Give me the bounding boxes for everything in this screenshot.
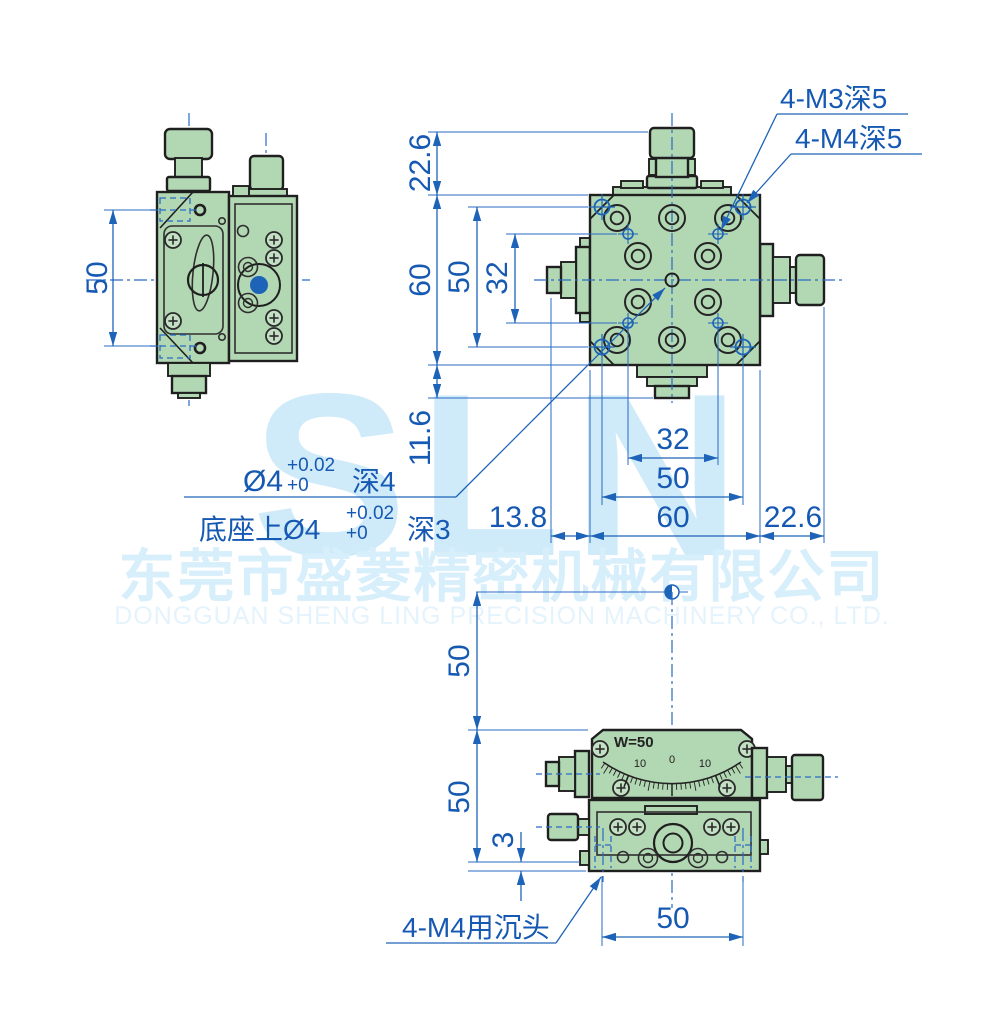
dim-50-left: 50 bbox=[443, 260, 476, 293]
note-l1-tol-up: +0.02 bbox=[287, 455, 335, 476]
dim-50-front-bottom: 50 bbox=[656, 902, 689, 935]
watermark-company-en: DONGGUAN SHENG LING PRECISION MACHINERY … bbox=[114, 602, 890, 630]
note-l1-tol-dn: +0 bbox=[287, 475, 309, 496]
callout-counterbore-label: 4-M4用沉头 bbox=[402, 912, 550, 943]
dim-11-6-left: 11.6 bbox=[404, 410, 437, 466]
side-body-tab bbox=[233, 186, 249, 196]
dim-22-6-bottom: 22.6 bbox=[764, 501, 822, 534]
dim-60-bottom: 60 bbox=[656, 501, 689, 534]
dim-50-bottom: 50 bbox=[656, 462, 689, 495]
scale-label-center: 0 bbox=[669, 754, 675, 766]
front-base-foot-left bbox=[580, 851, 589, 865]
note-l2-dia: 底座上Ø4 bbox=[199, 514, 320, 545]
note-l2-depth: 深3 bbox=[407, 514, 451, 545]
dim-50-body-height: 50 bbox=[443, 780, 476, 813]
dim-32-bottom: 32 bbox=[656, 423, 689, 456]
dim-3-flange: 3 bbox=[487, 832, 520, 849]
note-l1-depth: 深4 bbox=[352, 466, 396, 497]
dim-13-8-bottom: 13.8 bbox=[489, 501, 547, 534]
side-boss-center bbox=[250, 276, 268, 294]
technical-drawing-page: SLN 东莞市盛菱精密机械有限公司 DONGGUAN SHENG LING PR… bbox=[0, 0, 1001, 1031]
side-small-knob bbox=[246, 156, 287, 197]
dim-32-left: 32 bbox=[481, 261, 514, 294]
drawing-canvas: SLN 东莞市盛菱精密机械有限公司 DONGGUAN SHENG LING PR… bbox=[0, 0, 1001, 1031]
side-bottom-knob bbox=[168, 363, 210, 398]
scale-label-right: 10 bbox=[699, 758, 711, 770]
side-top-knob bbox=[165, 129, 212, 191]
note-l2-tol-dn: +0 bbox=[346, 523, 368, 544]
callout-m4-label: 4-M4深5 bbox=[795, 123, 902, 154]
callout-m3-label: 4-M3深5 bbox=[780, 83, 887, 114]
travel-label: W=50 bbox=[614, 734, 654, 751]
note-l1-dia: Ø4 bbox=[243, 465, 283, 498]
dim-22-6-left: 22.6 bbox=[404, 134, 437, 192]
side-dim-height-label: 50 bbox=[81, 261, 114, 294]
scale-label-left: 10 bbox=[634, 758, 646, 770]
watermark-company-cn: 东莞市盛菱精密机械有限公司 bbox=[119, 545, 886, 609]
note-l2-tol-up: +0.02 bbox=[346, 503, 394, 524]
front-base-foot-right bbox=[760, 840, 768, 854]
dim-50-rotation-center: 50 bbox=[443, 644, 476, 677]
dim-60-left: 60 bbox=[404, 263, 437, 296]
